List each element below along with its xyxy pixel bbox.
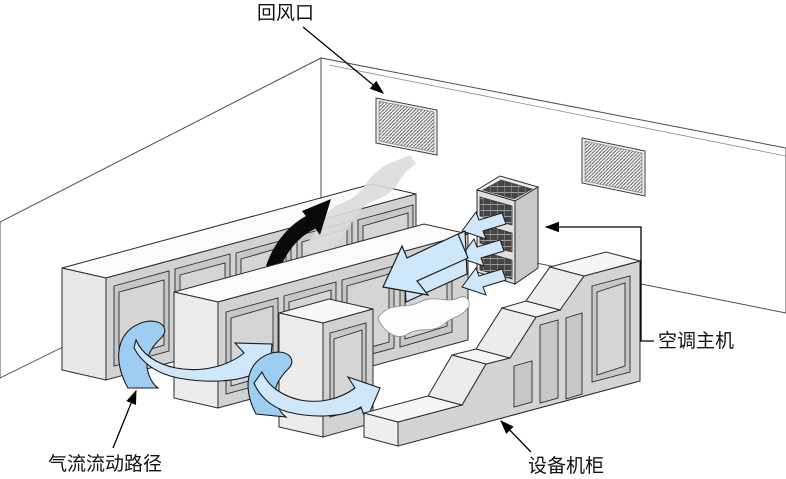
label-equipment-cabinet: 设备机柜	[528, 455, 604, 477]
rack-end-cap	[174, 292, 218, 408]
airflow-diagram: 回风口 空调主机 气流流动路径 设备机柜	[0, 0, 786, 479]
cabinet-side	[279, 313, 323, 437]
leader-line-equipment-cabinet	[501, 421, 531, 452]
label-return-air-vent: 回风口	[257, 3, 314, 24]
label-ac-main-unit: 空调主机	[658, 330, 734, 352]
ac-side	[515, 187, 538, 284]
leader-line-airflow-path	[113, 391, 136, 448]
diagram-canvas: 回风口 空调主机 气流流动路径 设备机柜	[0, 0, 786, 479]
rack-end-cap	[62, 268, 106, 380]
label-airflow-path: 气流流动路径	[48, 453, 162, 475]
